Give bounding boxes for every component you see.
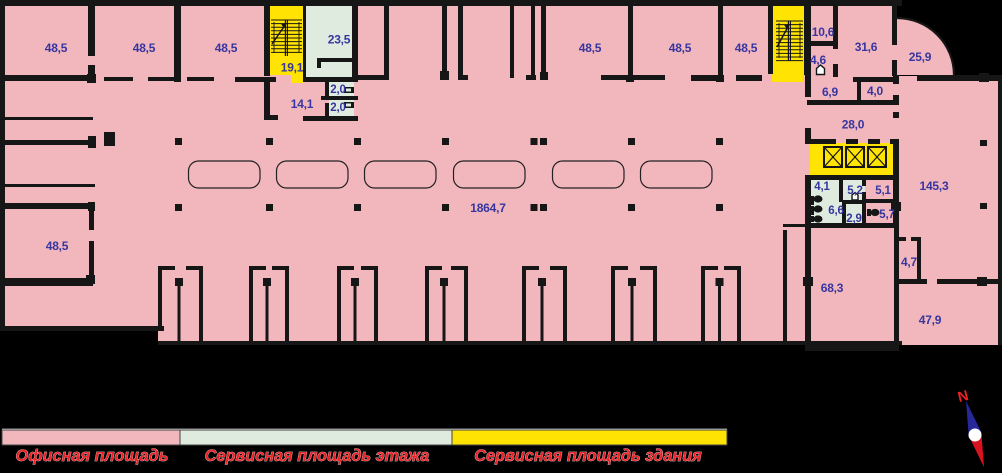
svg-text:2,0: 2,0 [330, 84, 345, 96]
svg-text:48,5: 48,5 [735, 41, 758, 55]
svg-text:48,5: 48,5 [669, 41, 692, 55]
svg-text:4,1: 4,1 [814, 181, 830, 193]
svg-text:5,2: 5,2 [847, 185, 862, 197]
svg-text:4,6: 4,6 [810, 53, 827, 67]
svg-text:48,5: 48,5 [45, 41, 68, 55]
svg-text:4,7: 4,7 [901, 255, 918, 269]
svg-text:48,5: 48,5 [579, 41, 602, 55]
svg-text:Офисная площадь: Офисная площадь [16, 447, 169, 465]
svg-text:145,3: 145,3 [919, 179, 949, 193]
svg-text:68,3: 68,3 [821, 281, 844, 295]
svg-text:48,5: 48,5 [215, 41, 238, 55]
svg-text:28,0: 28,0 [842, 118, 865, 132]
svg-text:5,7: 5,7 [879, 209, 894, 221]
svg-text:19,1: 19,1 [281, 61, 304, 75]
svg-text:2,9: 2,9 [846, 213, 861, 225]
svg-text:48,5: 48,5 [133, 41, 156, 55]
svg-text:Сервисная площадь здания: Сервисная площадь здания [474, 447, 702, 465]
svg-text:47,9: 47,9 [919, 313, 942, 327]
svg-text:14,1: 14,1 [291, 97, 314, 111]
svg-text:1864,7: 1864,7 [470, 201, 506, 215]
svg-text:4,0: 4,0 [867, 84, 884, 98]
svg-text:31,6: 31,6 [855, 40, 878, 54]
svg-text:10,6: 10,6 [812, 25, 835, 39]
svg-text:5,1: 5,1 [875, 185, 891, 197]
svg-text:6,6: 6,6 [828, 205, 843, 217]
svg-text:23,5: 23,5 [328, 33, 351, 47]
svg-text:25,9: 25,9 [909, 50, 932, 64]
svg-text:2,0: 2,0 [330, 102, 345, 114]
svg-text:6,9: 6,9 [822, 85, 839, 99]
svg-text:48,5: 48,5 [46, 239, 69, 253]
svg-text:Сервисная площадь этажа: Сервисная площадь этажа [205, 447, 430, 465]
